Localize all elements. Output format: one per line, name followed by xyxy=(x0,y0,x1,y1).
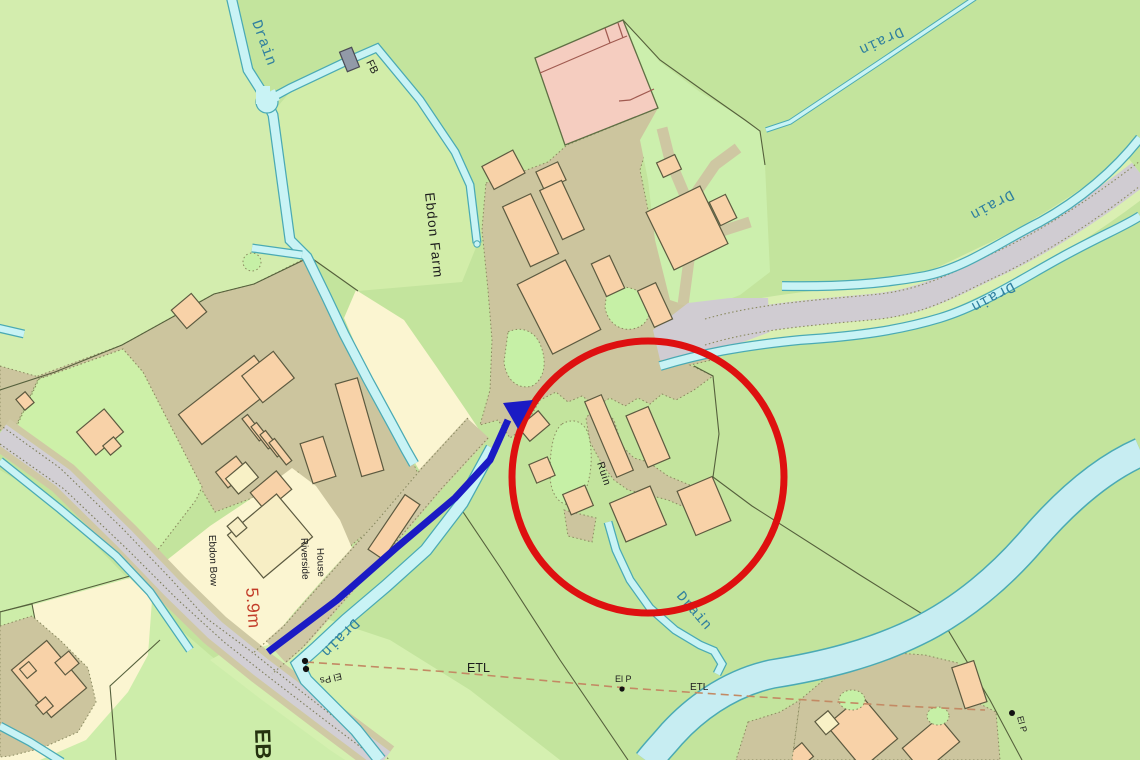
svg-text:House: House xyxy=(314,548,326,578)
svg-text:ETL: ETL xyxy=(467,661,490,675)
svg-text:5.9m: 5.9m xyxy=(242,587,265,629)
svg-text:EB: EB xyxy=(250,728,276,759)
svg-text:ETL: ETL xyxy=(690,682,709,693)
svg-text:El P: El P xyxy=(615,674,632,684)
svg-text:Ebdon Bow: Ebdon Bow xyxy=(206,535,219,587)
svg-text:Riverside: Riverside xyxy=(298,538,310,580)
